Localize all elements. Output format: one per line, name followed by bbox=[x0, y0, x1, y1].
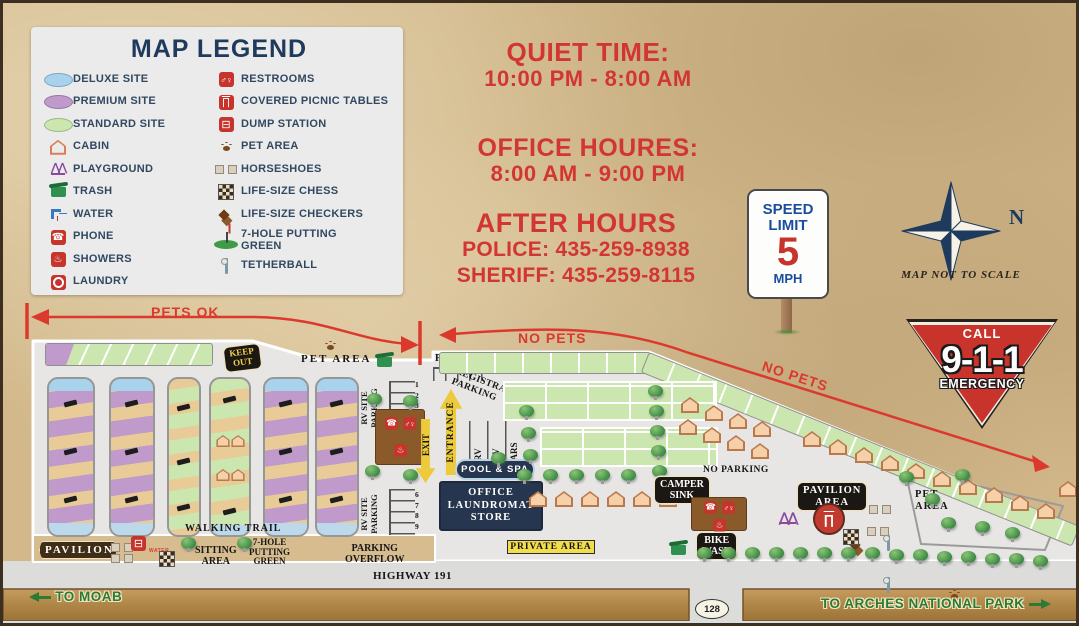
horseshoes-icon-map bbox=[111, 543, 133, 552]
cabin-icon bbox=[753, 421, 771, 437]
emergency-label: EMERGENCY bbox=[906, 377, 1058, 391]
bottom-strip bbox=[3, 621, 1079, 626]
tree-icon bbox=[517, 469, 532, 484]
no-parking-label: NO PARKING bbox=[703, 465, 769, 475]
speed-limit-sign: SPEED LIMIT 5 MPH bbox=[747, 189, 829, 299]
tree-icon bbox=[769, 547, 784, 562]
tree-icon bbox=[841, 547, 856, 562]
rv-parking-lines-bottom bbox=[389, 489, 415, 535]
tree-icon bbox=[367, 393, 382, 408]
site-column-5 bbox=[263, 377, 309, 537]
tree-icon bbox=[985, 553, 1000, 568]
tree-icon bbox=[595, 469, 610, 484]
map-legend-panel: MAP LEGEND DELUXE SITE PREMIUM SITE STAN… bbox=[31, 27, 403, 295]
tree-icon bbox=[543, 469, 558, 484]
tree-icon bbox=[181, 537, 196, 552]
showers-icon bbox=[713, 519, 726, 532]
speed-unit: MPH bbox=[774, 271, 803, 286]
legend-item-laundry: LAUNDRY bbox=[43, 273, 211, 293]
highway-191-label: HIGHWAY 191 bbox=[373, 570, 452, 582]
restroom-building-left bbox=[375, 409, 425, 465]
tree-icon bbox=[1009, 553, 1024, 568]
speed-value: 5 bbox=[777, 233, 799, 271]
tree-icon bbox=[403, 469, 418, 484]
to-arches-label: TO ARCHES NATIONAL PARK bbox=[821, 596, 1051, 611]
chess-icon-map bbox=[843, 529, 859, 545]
site-column-2 bbox=[109, 377, 155, 537]
playground-icon-map bbox=[779, 513, 796, 524]
tree-icon bbox=[1005, 527, 1020, 542]
pets-ok-label: PETS OK bbox=[151, 304, 219, 320]
cabin-icon bbox=[1059, 481, 1077, 497]
pet-area-label-top: PET AREA bbox=[301, 353, 372, 365]
legend-item-cabin: CABIN bbox=[43, 138, 211, 158]
tree-icon bbox=[925, 493, 940, 508]
covered-picnic-icon-map: ∏ bbox=[813, 503, 845, 535]
site-column-3 bbox=[167, 377, 201, 537]
cabin-icon bbox=[633, 491, 651, 507]
tetherball-icon-map bbox=[887, 577, 890, 593]
compass-north-label: N bbox=[1009, 205, 1024, 230]
pull-thru-strip bbox=[45, 343, 213, 366]
phone-icon bbox=[385, 417, 398, 430]
map-scale-note: MAP NOT TO SCALE bbox=[896, 269, 1026, 281]
legend-item-premium-site: PREMIUM SITE bbox=[43, 93, 211, 113]
no-pets-label-1: NO PETS bbox=[518, 330, 586, 346]
legend-item-horseshoes: HORSESHOES bbox=[211, 160, 395, 180]
dump-station-icon-map bbox=[131, 536, 146, 551]
phone-icon bbox=[704, 501, 717, 514]
tree-icon bbox=[793, 547, 808, 562]
tree-icon bbox=[961, 551, 976, 566]
site-column-1 bbox=[47, 377, 95, 537]
after-hours-title: AFTER HOURS bbox=[411, 209, 741, 237]
speed-word: SPEED bbox=[763, 202, 814, 218]
camper-sink-building bbox=[691, 497, 747, 531]
keep-out-sign: KEEP OUT bbox=[224, 344, 261, 372]
sitting-area-label: SITTING AREA bbox=[195, 546, 237, 567]
cabin-icon bbox=[681, 397, 699, 413]
quiet-time-block: QUIET TIME: 10:00 PM - 8:00 AM bbox=[433, 39, 743, 92]
rv-site-parking-label-bottom: RV SITE PARKING bbox=[359, 485, 379, 543]
cabin-icon bbox=[607, 491, 625, 507]
putting-green-label: 7-HOLE PUTTING GREEN bbox=[249, 538, 290, 567]
tree-icon bbox=[621, 469, 636, 484]
cabin-icon bbox=[855, 447, 873, 463]
cabin-icon bbox=[729, 413, 747, 429]
tetherball-icon bbox=[211, 258, 241, 274]
tree-icon bbox=[523, 449, 538, 464]
cabin-icon bbox=[727, 435, 745, 451]
route-128-number: 128 bbox=[704, 604, 720, 615]
tree-icon bbox=[569, 469, 584, 484]
restrooms-icon bbox=[211, 72, 241, 87]
office-hours-title: OFFICE HOURES: bbox=[433, 135, 743, 161]
private-area-label: PRIVATE AREA bbox=[507, 540, 595, 554]
cabin-icon bbox=[829, 439, 847, 455]
tree-icon bbox=[519, 405, 534, 420]
chess-icon-map bbox=[159, 551, 175, 567]
cabin-icon bbox=[43, 140, 73, 155]
trash-icon-top bbox=[377, 357, 392, 367]
cabin-icon bbox=[705, 405, 723, 421]
cabin-icon bbox=[581, 491, 599, 507]
parking-overflow-label: PARKING OVERFLOW bbox=[345, 543, 404, 565]
campground-map: MAP LEGEND DELUXE SITE PREMIUM SITE STAN… bbox=[0, 0, 1079, 626]
tree-icon bbox=[865, 547, 880, 562]
showers-icon bbox=[43, 252, 73, 267]
legend-item-life-size-chess: LIFE-SIZE CHESS bbox=[211, 183, 395, 203]
cabin-icon bbox=[216, 469, 230, 481]
cabin-icon bbox=[933, 471, 951, 487]
legend-item-phone: PHONE bbox=[43, 228, 211, 248]
after-hours-block: AFTER HOURS POLICE: 435-259-8938 SHERIFF… bbox=[411, 209, 741, 288]
cabin-icon bbox=[555, 491, 573, 507]
tree-icon bbox=[955, 469, 970, 484]
site-column-4 bbox=[209, 377, 251, 537]
rv-slot-numbers-bottom: 6 7 8 9 bbox=[415, 490, 419, 532]
cabin-icon bbox=[985, 487, 1003, 503]
compass-rose-icon bbox=[901, 181, 1001, 281]
quiet-time-hours: 10:00 PM - 8:00 AM bbox=[433, 66, 743, 91]
tree-icon bbox=[937, 551, 952, 566]
tree-icon bbox=[889, 549, 904, 564]
sign-post bbox=[781, 297, 792, 333]
grass bbox=[773, 329, 801, 335]
tree-icon bbox=[745, 547, 760, 562]
tree-icon bbox=[697, 547, 712, 562]
site-column-6 bbox=[315, 377, 359, 537]
pet-area-icon bbox=[211, 141, 241, 153]
left-arrow-icon bbox=[29, 592, 51, 602]
cabin-icon bbox=[803, 431, 821, 447]
trash-icon-mid bbox=[671, 545, 686, 555]
cabin-icon bbox=[751, 443, 769, 459]
tree-icon bbox=[651, 445, 666, 460]
pavilion-sign: PAVILION bbox=[39, 541, 117, 559]
office-laundromat-store-sign: OFFICE LAUNDROMAT STORE bbox=[439, 481, 543, 531]
legend-item-putting-green: 7-HOLE PUTTING GREEN bbox=[211, 228, 395, 254]
legend-columns: DELUXE SITE PREMIUM SITE STANDARD SITE C… bbox=[43, 70, 395, 292]
call-911-sign: CALL 9-1-1 EMERGENCY bbox=[906, 319, 1058, 429]
restrooms-icon bbox=[722, 501, 735, 514]
dump-station-icon bbox=[211, 117, 241, 132]
tree-icon bbox=[650, 425, 665, 440]
cabin-icon bbox=[231, 469, 245, 481]
walking-trail-label: WALKING TRAIL bbox=[185, 523, 281, 534]
legend-title: MAP LEGEND bbox=[43, 35, 395, 64]
laundry-icon bbox=[43, 275, 73, 290]
tree-icon bbox=[491, 452, 506, 467]
legend-item-deluxe-site: DELUXE SITE bbox=[43, 70, 211, 90]
cabin-icon bbox=[1011, 495, 1029, 511]
tree-icon bbox=[521, 427, 536, 442]
deluxe-site-icon bbox=[43, 73, 73, 87]
legend-item-playground: PLAYGROUND bbox=[43, 160, 211, 180]
route-128-shield: 128 bbox=[695, 599, 729, 619]
tree-icon bbox=[649, 405, 664, 420]
legend-item-life-size-checkers: LIFE-SIZE CHECKERS bbox=[211, 205, 395, 225]
exit-label: EXIT bbox=[421, 434, 431, 456]
tree-icon bbox=[365, 465, 380, 480]
cabin-icon bbox=[679, 419, 697, 435]
paw-icon-top bbox=[323, 340, 337, 352]
standard-site-icon bbox=[43, 118, 73, 132]
legend-item-restrooms: RESTROOMS bbox=[211, 70, 395, 90]
to-moab-label: TO MOAB bbox=[29, 589, 122, 604]
tree-icon bbox=[941, 517, 956, 532]
after-hours-police: POLICE: 435-259-8938 bbox=[411, 237, 741, 262]
premium-strip-cell bbox=[46, 344, 74, 365]
horseshoes-icon bbox=[211, 165, 241, 174]
legend-item-dump-station: DUMP STATION bbox=[211, 115, 395, 135]
playground-icon bbox=[43, 164, 73, 175]
tree-icon bbox=[913, 549, 928, 564]
tree-icon bbox=[975, 521, 990, 536]
cabin-icon bbox=[529, 491, 547, 507]
legend-item-tetherball: TETHERBALL bbox=[211, 257, 395, 277]
legend-item-pet-area: PET AREA bbox=[211, 138, 395, 158]
legend-item-trash: TRASH bbox=[43, 183, 211, 203]
horseshoes-icon-map bbox=[111, 554, 133, 563]
cabin-icon bbox=[231, 435, 245, 447]
trash-icon bbox=[43, 187, 73, 197]
legend-item-water: WATER bbox=[43, 205, 211, 225]
office-hours-value: 8:00 AM - 9:00 PM bbox=[433, 161, 743, 186]
restrooms-icon bbox=[403, 417, 416, 430]
phone-icon bbox=[43, 230, 73, 245]
cabin-icon bbox=[703, 427, 721, 443]
showers-icon bbox=[394, 444, 407, 457]
legend-item-covered-picnic-tables: COVERED PICNIC TABLES bbox=[211, 93, 395, 113]
tree-icon bbox=[721, 547, 736, 562]
legend-column-left: DELUXE SITE PREMIUM SITE STANDARD SITE C… bbox=[43, 70, 211, 292]
premium-site-icon bbox=[43, 95, 73, 109]
911-number: 9-1-1 bbox=[906, 339, 1058, 381]
covered-picnic-tables-icon bbox=[211, 95, 241, 110]
after-hours-sheriff: SHERIFF: 435-259-8115 bbox=[411, 263, 741, 288]
cabin-icon bbox=[881, 455, 899, 471]
life-size-chess-icon bbox=[211, 184, 241, 200]
horseshoes-icon-map bbox=[869, 505, 891, 514]
quiet-time-title: QUIET TIME: bbox=[433, 39, 743, 66]
cabin-icon bbox=[1037, 503, 1055, 519]
tree-icon bbox=[1033, 555, 1048, 570]
tree-icon bbox=[403, 395, 418, 410]
tree-icon bbox=[817, 547, 832, 562]
standard-strip-mid bbox=[439, 352, 651, 374]
entrance-label: ENTRANCE bbox=[446, 401, 456, 462]
legend-item-standard-site: STANDARD SITE bbox=[43, 115, 211, 135]
water-icon bbox=[43, 208, 73, 221]
tree-icon bbox=[648, 385, 663, 400]
right-arrow-icon bbox=[1029, 599, 1051, 609]
cabin-icon bbox=[216, 435, 230, 447]
putting-green-icon bbox=[211, 233, 241, 249]
tree-icon bbox=[899, 471, 914, 486]
legend-item-showers: SHOWERS bbox=[43, 250, 211, 270]
office-hours-block: OFFICE HOURES: 8:00 AM - 9:00 PM bbox=[433, 135, 743, 187]
life-size-checkers-icon bbox=[211, 209, 241, 221]
legend-column-right: RESTROOMS COVERED PICNIC TABLES DUMP STA… bbox=[211, 70, 395, 292]
